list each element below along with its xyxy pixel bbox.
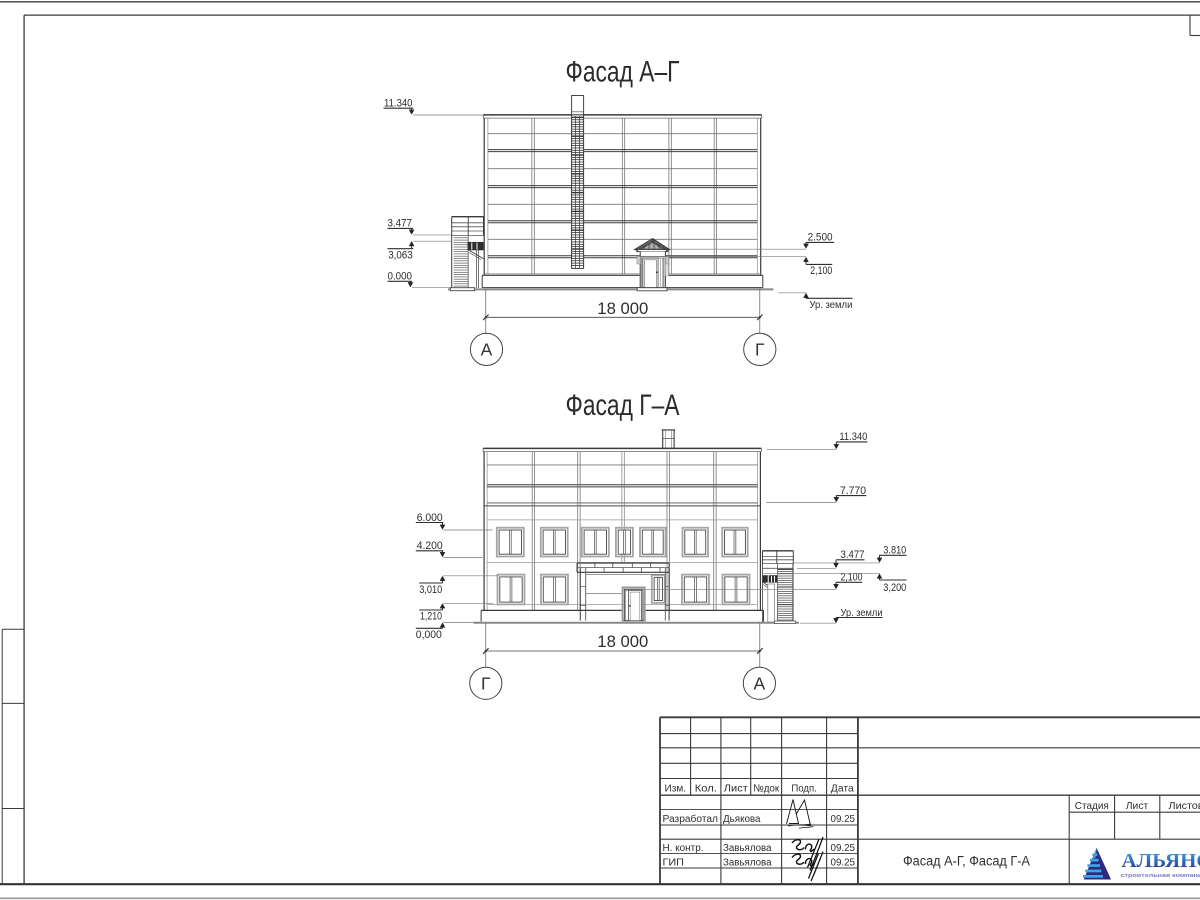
- svg-text:09.25: 09.25: [831, 814, 856, 825]
- svg-text:Дата: Дата: [831, 783, 854, 795]
- svg-text:Дьякова: Дьякова: [723, 814, 761, 825]
- svg-text:0.000: 0.000: [388, 271, 413, 283]
- svg-text:Н. контр.: Н. контр.: [663, 843, 704, 854]
- svg-text:7.770: 7.770: [840, 485, 866, 497]
- svg-text:0,000: 0,000: [416, 629, 442, 641]
- svg-text:11.340: 11.340: [839, 431, 867, 443]
- svg-text:18 000: 18 000: [597, 632, 648, 651]
- svg-text:Лист: Лист: [1126, 800, 1149, 812]
- svg-text:2,100: 2,100: [810, 265, 832, 277]
- svg-text:Стадия: Стадия: [1075, 800, 1109, 812]
- svg-text:3.477: 3.477: [388, 218, 413, 230]
- svg-text:А: А: [754, 674, 766, 694]
- svg-text:2.500: 2.500: [808, 232, 833, 244]
- svg-text:09.25: 09.25: [831, 857, 856, 868]
- svg-text:Завьялова: Завьялова: [723, 857, 772, 868]
- svg-text:А: А: [481, 340, 493, 360]
- svg-text:Фасад А–Г: Фасад А–Г: [566, 55, 680, 88]
- svg-text:Фасад А-Г, Фасад Г-А: Фасад А-Г, Фасад Г-А: [903, 854, 1030, 869]
- svg-text:Изм.: Изм.: [665, 783, 687, 795]
- svg-text:Разработал: Разработал: [663, 813, 719, 825]
- svg-text:Завьялова: Завьялова: [723, 843, 772, 854]
- svg-text:1,210: 1,210: [420, 611, 442, 623]
- svg-text:Лист: Лист: [724, 783, 748, 795]
- svg-text:Листов: Листов: [1169, 800, 1200, 812]
- svg-text:№док: №док: [753, 783, 779, 795]
- svg-text:Подп.: Подп.: [791, 783, 817, 795]
- svg-text:3,200: 3,200: [883, 582, 906, 594]
- svg-text:АЛЬЯНС: АЛЬЯНС: [1122, 851, 1200, 872]
- svg-text:Фасад Г–А: Фасад Г–А: [566, 389, 680, 422]
- svg-text:ГИП: ГИП: [663, 857, 685, 868]
- svg-text:09.25: 09.25: [831, 843, 856, 854]
- svg-text:Кол.: Кол.: [695, 783, 717, 795]
- svg-text:3,063: 3,063: [388, 250, 413, 262]
- svg-text:Г: Г: [755, 340, 765, 360]
- svg-text:Г: Г: [481, 674, 491, 694]
- svg-text:3,010: 3,010: [419, 584, 442, 596]
- svg-text:11.340: 11.340: [384, 97, 413, 109]
- svg-text:18 000: 18 000: [597, 299, 648, 318]
- svg-text:Ур. земли: Ур. земли: [809, 300, 852, 311]
- svg-text:строительная компания: строительная компания: [1121, 873, 1200, 879]
